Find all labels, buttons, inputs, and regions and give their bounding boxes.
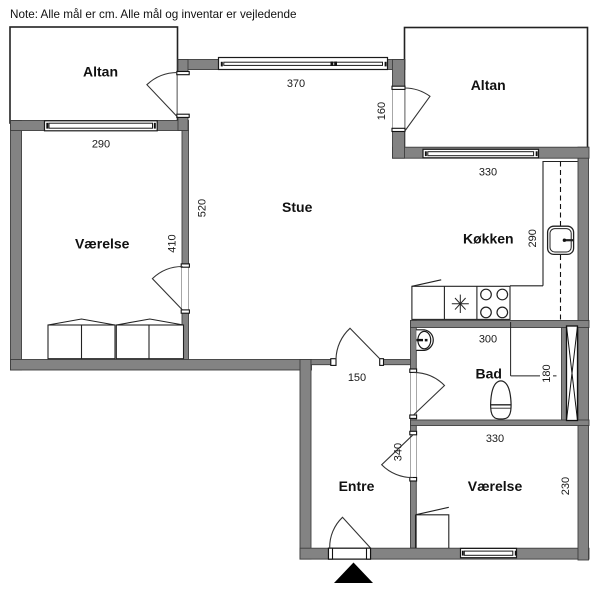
svg-text:230: 230 [560, 477, 572, 495]
svg-text:Køkken: Køkken [463, 230, 514, 246]
svg-text:Bad: Bad [475, 365, 501, 381]
svg-text:Altan: Altan [471, 77, 506, 93]
svg-text:Værelse: Værelse [75, 236, 130, 252]
svg-text:300: 300 [479, 334, 497, 346]
svg-text:370: 370 [287, 78, 305, 90]
svg-text:Værelse: Værelse [468, 478, 523, 494]
svg-text:340: 340 [393, 443, 405, 461]
svg-text:Altan: Altan [83, 63, 118, 79]
svg-text:180: 180 [541, 364, 553, 382]
svg-text:Note: Alle mål er cm. Alle mål: Note: Alle mål er cm. Alle mål og invent… [10, 8, 297, 21]
svg-text:160: 160 [376, 102, 388, 120]
svg-text:410: 410 [166, 234, 178, 252]
svg-text:330: 330 [479, 167, 497, 179]
svg-text:520: 520 [196, 199, 208, 217]
svg-text:Stue: Stue [282, 199, 313, 215]
svg-text:Entre: Entre [339, 478, 375, 494]
svg-text:290: 290 [92, 139, 110, 151]
svg-text:290: 290 [527, 229, 539, 247]
svg-text:150: 150 [348, 372, 366, 384]
svg-text:330: 330 [486, 433, 504, 445]
